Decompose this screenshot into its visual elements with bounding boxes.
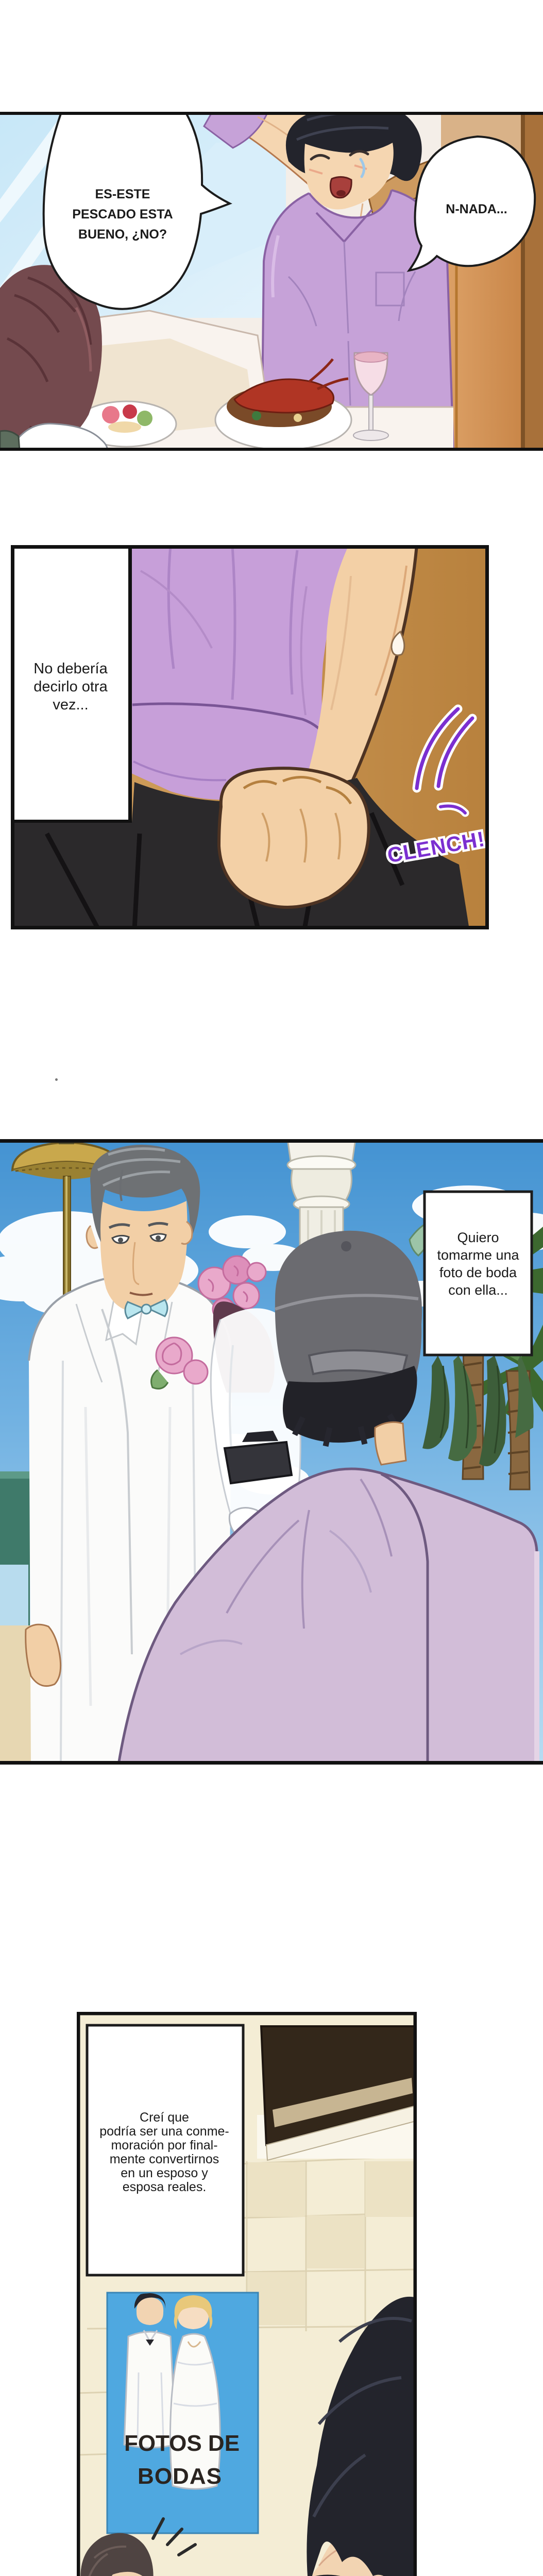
- svg-text:esposa reales.: esposa reales.: [123, 2180, 207, 2194]
- svg-text:vez...: vez...: [53, 697, 88, 713]
- svg-text:No debería: No debería: [33, 660, 108, 677]
- svg-text:podría ser una conme-: podría ser una conme-: [99, 2124, 229, 2139]
- svg-text:tomarme una: tomarme una: [437, 1247, 519, 1263]
- svg-text:N-NADA...: N-NADA...: [446, 202, 507, 216]
- svg-text:ES-ESTE: ES-ESTE: [95, 187, 150, 201]
- svg-text:con ella...: con ella...: [448, 1282, 508, 1298]
- svg-text:en un esposo y: en un esposo y: [121, 2166, 208, 2180]
- svg-text:PESCADO ESTA: PESCADO ESTA: [72, 207, 173, 222]
- svg-text:foto de boda: foto de boda: [439, 1265, 517, 1280]
- svg-text:FOTOS DE: FOTOS DE: [124, 2431, 240, 2456]
- svg-text:decirlo otra: decirlo otra: [33, 679, 108, 695]
- svg-text:Quiero: Quiero: [457, 1230, 499, 1245]
- svg-text:BODAS: BODAS: [138, 2464, 222, 2489]
- svg-text:Creí que: Creí que: [140, 2110, 189, 2125]
- svg-text:BUENO, ¿NO?: BUENO, ¿NO?: [78, 227, 167, 242]
- svg-text:moración por final-: moración por final-: [111, 2138, 217, 2153]
- svg-text:mente convertirnos: mente convertirnos: [110, 2152, 219, 2166]
